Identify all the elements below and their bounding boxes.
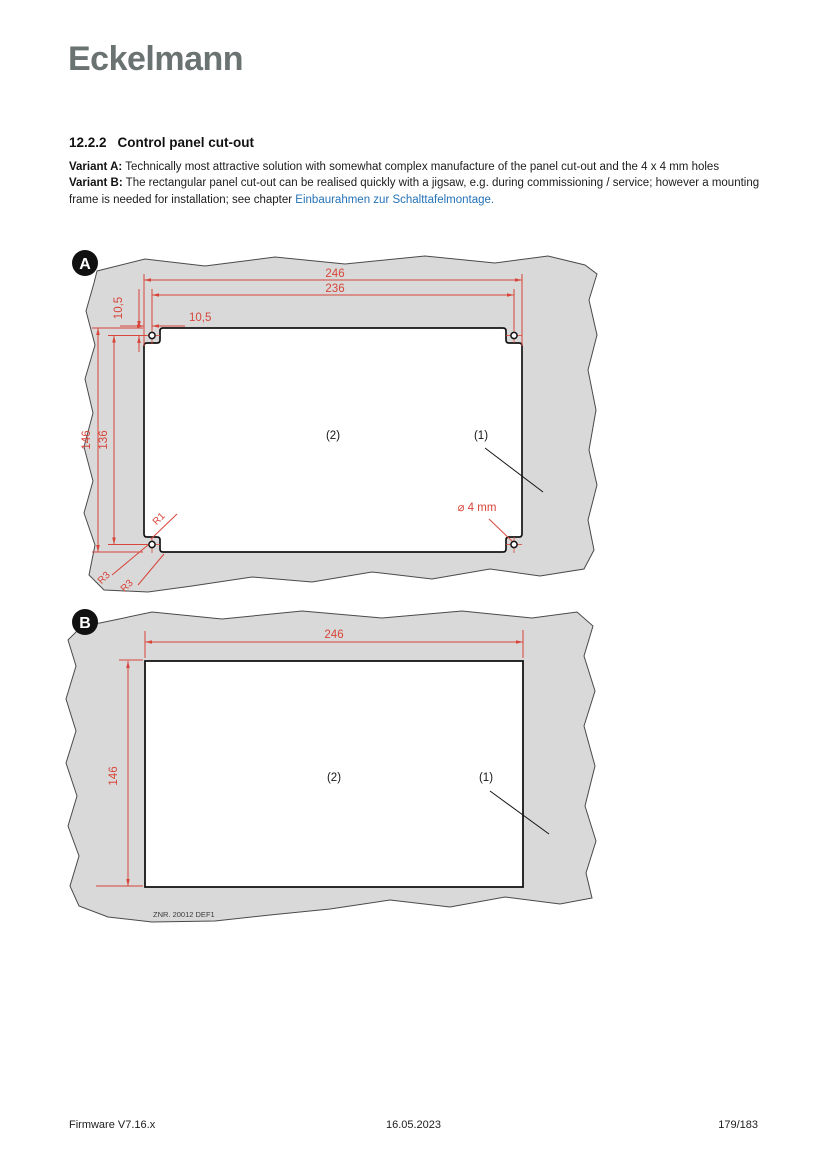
drawing-number: ZNR. 20012 DEF1 bbox=[153, 910, 215, 919]
dim-width-outer-a: 246 bbox=[325, 268, 344, 280]
variant-b-paragraph: Variant B: The rectangular panel cut-out… bbox=[69, 175, 763, 208]
diagram-variant-b: 246 146 (2) (1) ZNR. 20012 DEF1 B bbox=[55, 598, 615, 930]
hole-top-left bbox=[149, 332, 155, 338]
intro-text: Variant A: Technically most attractive s… bbox=[69, 159, 763, 208]
panel-ref-label-b: (1) bbox=[479, 772, 493, 784]
variant-a-text: Technically most attractive solution wit… bbox=[122, 161, 719, 173]
dim-offset-vertical-a: 10,5 bbox=[113, 297, 125, 319]
variant-b-badge-letter: B bbox=[79, 615, 91, 632]
variant-a-paragraph: Variant A: Technically most attractive s… bbox=[69, 159, 763, 175]
dim-height-outer-a: 146 bbox=[81, 430, 93, 449]
footer-page-number: 179/183 bbox=[718, 1119, 758, 1131]
hole-diameter-label: ⌀ 4 mm bbox=[458, 502, 497, 514]
diagram-variant-a: 246 236 10,5 10,5 146 136 R1 R3 R3 ⌀ 4 m… bbox=[60, 245, 620, 603]
eckelmann-logo: Eckelmann bbox=[68, 40, 243, 79]
section-heading: 12.2.2Control panel cut-out bbox=[69, 135, 254, 150]
document-page: Eckelmann 12.2.2Control panel cut-out Va… bbox=[0, 0, 827, 1169]
dim-height-holes-a: 136 bbox=[98, 430, 110, 449]
dim-offset-horizontal-a: 10,5 bbox=[189, 312, 211, 324]
variant-b-label: Variant B: bbox=[69, 177, 123, 189]
page-footer: Firmware V7.16.x 16.05.2023 179/183 bbox=[69, 1119, 758, 1131]
footer-date: 16.05.2023 bbox=[69, 1119, 758, 1131]
section-title: Control panel cut-out bbox=[118, 135, 254, 150]
hole-bottom-left bbox=[149, 541, 155, 547]
hole-top-right bbox=[511, 332, 517, 338]
dim-width-b: 246 bbox=[324, 629, 343, 641]
dim-height-b: 146 bbox=[108, 766, 120, 785]
cutout-ref-label-b: (2) bbox=[327, 772, 341, 784]
panel-ref-label-a: (1) bbox=[474, 430, 488, 442]
dim-width-holes-a: 236 bbox=[325, 283, 344, 295]
hole-bottom-right bbox=[511, 541, 517, 547]
chapter-link[interactable]: Einbaurahmen zur Schalttafelmontage. bbox=[295, 194, 494, 206]
variant-a-badge-letter: A bbox=[79, 256, 91, 273]
section-number: 12.2.2 bbox=[69, 135, 107, 150]
cutout-ref-label-a: (2) bbox=[326, 430, 340, 442]
variant-a-label: Variant A: bbox=[69, 161, 122, 173]
